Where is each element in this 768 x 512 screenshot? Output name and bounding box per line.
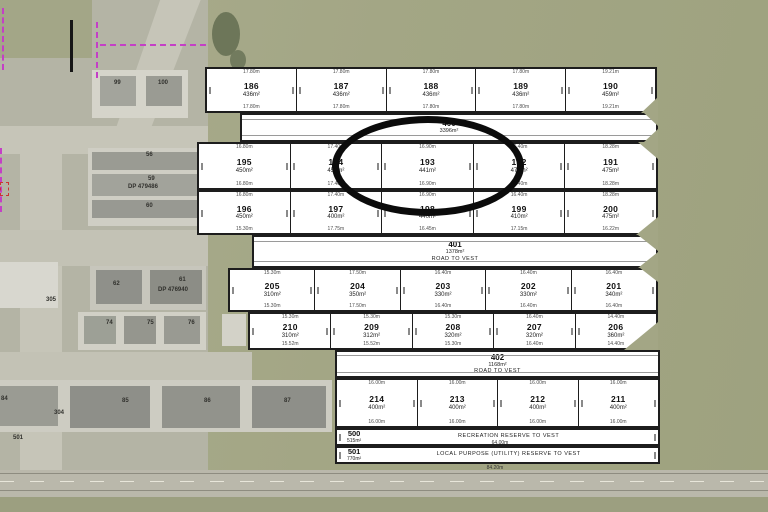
- lot-area: 312m²: [363, 333, 380, 339]
- lot-row-210-206: 15.30m210310m²15.52m15.30m209312m²15.52m…: [248, 312, 658, 350]
- lot-dimension-bottom: 16.00m: [579, 420, 659, 425]
- side-tick: [478, 87, 480, 94]
- lot-number: 191: [603, 158, 618, 167]
- side-tick: [567, 210, 569, 217]
- side-tick: [471, 87, 473, 94]
- lot-dimension-top: 16.80m: [199, 193, 290, 198]
- lot-dimension-bottom: 17.50m: [315, 304, 399, 309]
- lot-cell: 17.80m187436m²17.80m: [296, 69, 386, 111]
- lot-number: 201: [606, 282, 621, 291]
- lot-dimension-bottom: 16.80m: [199, 182, 290, 187]
- lot-dimension-top: 15.30m: [230, 271, 314, 276]
- lot-cell: 16.00m212400m²16.00m: [497, 380, 578, 426]
- side-tick: [652, 210, 654, 217]
- side-tick: [568, 87, 570, 94]
- lot-dimension-bottom: 16.40m: [494, 342, 574, 347]
- side-tick: [560, 163, 562, 170]
- lot-cell: 15.30m209312m²15.52m: [330, 314, 411, 348]
- lot-cell: 16.00m213400m²16.00m: [417, 380, 498, 426]
- side-tick: [317, 287, 319, 294]
- lot-dimension-bottom: 15.52m: [250, 342, 330, 347]
- side-tick: [651, 87, 653, 94]
- lot-area: 459m²: [602, 92, 619, 98]
- side-tick: [489, 328, 491, 335]
- parcel-number: 501: [348, 448, 361, 456]
- lot-dimension-bottom: 17.80m: [476, 105, 565, 110]
- lot-number: 212: [530, 395, 545, 404]
- lot-number: 199: [512, 205, 527, 214]
- side-tick: [396, 287, 398, 294]
- road-parcel-401: 401 1378m² ROAD TO VEST: [252, 235, 658, 268]
- lot-cell: 15.30m205310m²15.30m: [230, 270, 314, 310]
- side-tick: [500, 400, 502, 407]
- lot-number: 200: [603, 205, 618, 214]
- side-tick: [252, 328, 254, 335]
- parcel-note: LOCAL PURPOSE (UTILITY) RESERVE TO VEST: [369, 452, 648, 458]
- lot-number: 190: [603, 82, 618, 91]
- lot-area: 436m²: [512, 92, 529, 98]
- parcel-number: 401: [448, 241, 461, 249]
- parcel-corner-cut: [644, 129, 658, 142]
- lot-number: 209: [364, 323, 379, 332]
- lot-area: 400m²: [610, 405, 627, 411]
- lot-dimension-bottom: 15.30m: [230, 304, 314, 309]
- lot-area: 310m²: [282, 333, 299, 339]
- lot-area: 400m²: [327, 214, 344, 220]
- lot-dimension-bottom: 16.40m: [572, 304, 656, 309]
- side-tick: [488, 287, 490, 294]
- side-tick: [326, 328, 328, 335]
- side-tick: [382, 87, 384, 94]
- lot-dimension-top: 16.80m: [199, 145, 290, 150]
- lot-cell: 16.80m196450m²15.30m: [199, 192, 290, 233]
- lot-area: 436m²: [243, 92, 260, 98]
- road-edge-line: [254, 261, 656, 262]
- lot-cell: 16.00m211400m²16.00m: [578, 380, 659, 426]
- lot-dimension-bottom: 15.30m: [199, 227, 290, 232]
- lot-dimension-top: 17.80m: [387, 70, 476, 75]
- lot-number: 187: [334, 82, 349, 91]
- road-parcel-402: 402 1168m² ROAD TO VEST: [335, 350, 660, 378]
- side-tick: [476, 210, 478, 217]
- parcel-corner-cut: [638, 142, 658, 159]
- side-tick: [560, 210, 562, 217]
- lot-row-205-201: 15.30m205310m²15.30m17.50m204350m²17.50m…: [228, 268, 658, 312]
- lot-dimension-bottom: 16.40m: [401, 304, 485, 309]
- parcel-corner-cut: [638, 235, 658, 251]
- reserve-parcel-501: 501 770m² LOCAL PURPOSE (UTILITY) RESERV…: [335, 446, 660, 464]
- lot-cell: 16.40m202330m²16.40m: [485, 270, 570, 310]
- road-edge-line: [337, 355, 658, 356]
- lot-dimension-top: 16.00m: [418, 381, 498, 386]
- lot-number: 206: [608, 323, 623, 332]
- side-tick: [339, 452, 341, 459]
- lot-cell: 17.80m188436m²17.80m: [386, 69, 476, 111]
- lot-dimension-bottom: 16.40m: [486, 304, 570, 309]
- dimension-label: 84.20m: [455, 466, 535, 471]
- lot-dimension-bottom: 15.30m: [413, 342, 493, 347]
- lot-number: 214: [369, 395, 384, 404]
- side-tick: [496, 328, 498, 335]
- lot-cell: 16.00m214400m²16.00m: [337, 380, 417, 426]
- lot-dimension-bottom: 16.00m: [418, 420, 498, 425]
- lot-dimension-bottom: 17.80m: [297, 105, 386, 110]
- lot-cell: 16.40m207320m²16.40m: [493, 314, 574, 348]
- side-tick: [578, 328, 580, 335]
- lot-cell: 15.30m210310m²15.52m: [250, 314, 330, 348]
- side-tick: [286, 163, 288, 170]
- lot-row-214-211: 16.00m214400m²16.00m16.00m213400m²16.00m…: [335, 378, 660, 428]
- side-tick: [377, 210, 379, 217]
- lot-dimension-top: 15.30m: [331, 315, 411, 320]
- lot-row-186-190: 17.80m186436m²17.80m17.80m187436m²17.80m…: [205, 67, 657, 113]
- lot-number: 210: [283, 323, 298, 332]
- lot-dimension-bottom: 17.15m: [474, 227, 565, 232]
- lot-number: 202: [521, 282, 536, 291]
- lot-area: 450m²: [236, 168, 253, 174]
- lot-area: 360m²: [607, 333, 624, 339]
- side-tick: [339, 400, 341, 407]
- parcel-number: 500: [348, 430, 361, 438]
- side-tick: [481, 287, 483, 294]
- side-tick: [389, 87, 391, 94]
- lot-area: 400m²: [449, 405, 466, 411]
- lot-dimension-top: 16.00m: [337, 381, 417, 386]
- lot-cell: 16.80m195450m²16.80m: [199, 144, 290, 188]
- lot-dimension-top: 17.80m: [476, 70, 565, 75]
- side-tick: [493, 400, 495, 407]
- lot-cell: 15.30m208320m²15.30m: [412, 314, 493, 348]
- side-tick: [310, 287, 312, 294]
- lot-dimension-top: 16.40m: [401, 271, 485, 276]
- side-tick: [403, 287, 405, 294]
- lot-dimension-bottom: 17.80m: [387, 105, 476, 110]
- lot-cell: 17.50m204350m²17.50m: [314, 270, 399, 310]
- side-tick: [652, 287, 654, 294]
- side-tick: [292, 87, 294, 94]
- side-tick: [339, 434, 341, 441]
- dimension-label: 64.00m: [470, 441, 530, 446]
- lot-number: 197: [328, 205, 343, 214]
- lot-number: 204: [350, 282, 365, 291]
- highlight-ellipse-lot-193: [332, 116, 524, 216]
- side-tick: [561, 87, 563, 94]
- lot-dimension-bottom: 17.75m: [291, 227, 382, 232]
- lot-area: 436m²: [333, 92, 350, 98]
- lot-cell: 17.80m186436m²17.80m: [207, 69, 296, 111]
- lot-number: 189: [513, 82, 528, 91]
- lot-dimension-bottom: 16.00m: [337, 420, 417, 425]
- lot-number: 207: [527, 323, 542, 332]
- side-tick: [574, 400, 576, 407]
- lot-dimension-top: 16.40m: [494, 315, 574, 320]
- lot-dimension-top: 15.30m: [413, 315, 493, 320]
- lot-area: 410m²: [511, 214, 528, 220]
- side-tick: [333, 328, 335, 335]
- lot-number: 211: [611, 395, 626, 404]
- parcel-corner-cut: [638, 252, 658, 268]
- side-tick: [408, 328, 410, 335]
- lot-area: 320m²: [445, 333, 462, 339]
- parcel-area: 770m²: [347, 457, 361, 462]
- side-tick: [201, 210, 203, 217]
- lot-number: 205: [265, 282, 280, 291]
- lot-dimension-top: 19.21m: [566, 70, 655, 75]
- side-tick: [413, 400, 415, 407]
- lot-dimension-top: 16.00m: [579, 381, 659, 386]
- lot-number: 213: [450, 395, 465, 404]
- parcel-corner-cut: [636, 217, 658, 235]
- plan-overlay: 17.80m186436m²17.80m17.80m187436m²17.80m…: [0, 0, 768, 512]
- road-edge-line: [254, 241, 656, 242]
- side-tick: [299, 87, 301, 94]
- side-tick: [654, 452, 656, 459]
- parcel-area: 1378m²: [446, 250, 465, 256]
- lot-number: 208: [445, 323, 460, 332]
- lot-dimension-bottom: 16.45m: [382, 227, 473, 232]
- lot-dimension-bottom: 15.52m: [331, 342, 411, 347]
- lot-area: 400m²: [368, 405, 385, 411]
- lot-dimension-top: 16.00m: [498, 381, 578, 386]
- side-tick: [286, 210, 288, 217]
- lot-dimension-bottom: 16.00m: [498, 420, 578, 425]
- side-tick: [652, 163, 654, 170]
- lot-number: 203: [435, 282, 450, 291]
- lot-area: 436m²: [422, 92, 439, 98]
- parcel-area: 515m²: [347, 439, 361, 444]
- lot-area: 330m²: [435, 292, 452, 298]
- parcel-corner-cut: [624, 322, 658, 350]
- lot-area: 400m²: [529, 405, 546, 411]
- lot-area: 450m²: [236, 214, 253, 220]
- side-tick: [567, 287, 569, 294]
- side-tick: [574, 287, 576, 294]
- parcel-corner-cut: [644, 113, 658, 126]
- side-tick: [209, 87, 211, 94]
- lot-number: 195: [237, 158, 252, 167]
- side-tick: [415, 328, 417, 335]
- lot-area: 475m²: [602, 214, 619, 220]
- lot-dimension-top: 17.80m: [297, 70, 386, 75]
- lot-area: 340m²: [605, 292, 622, 298]
- road-edge-line: [337, 372, 658, 373]
- side-tick: [293, 163, 295, 170]
- parcel-note: RECREATION RESERVE TO VEST: [369, 434, 648, 440]
- side-tick: [581, 400, 583, 407]
- lot-number: 188: [423, 82, 438, 91]
- lot-dimension-top: 14.40m: [576, 315, 656, 320]
- side-tick: [654, 400, 656, 407]
- side-tick: [571, 328, 573, 335]
- lot-dimension-top: 16.40m: [486, 271, 570, 276]
- lot-number: 186: [244, 82, 259, 91]
- lot-area: 330m²: [520, 292, 537, 298]
- lot-dimension-top: 18.28m: [565, 193, 656, 198]
- lot-area: 350m²: [349, 292, 366, 298]
- side-tick: [293, 210, 295, 217]
- lot-dimension-bottom: 18.28m: [565, 182, 656, 187]
- lot-dimension-bottom: 17.80m: [207, 105, 296, 110]
- lot-cell: 17.80m189436m²17.80m: [475, 69, 565, 111]
- parcel-corner-cut: [641, 97, 658, 113]
- side-tick: [201, 163, 203, 170]
- subdivision-plan-map: 17.80m186436m²17.80m17.80m187436m²17.80m…: [0, 0, 768, 512]
- lot-dimension-top: 15.30m: [250, 315, 330, 320]
- side-tick: [567, 163, 569, 170]
- lot-number: 196: [237, 205, 252, 214]
- side-tick: [232, 287, 234, 294]
- side-tick: [420, 400, 422, 407]
- lot-dimension-top: 17.50m: [315, 271, 399, 276]
- lot-dimension-top: 17.80m: [207, 70, 296, 75]
- lot-area: 475m²: [602, 168, 619, 174]
- lot-cell: 16.40m203330m²16.40m: [400, 270, 485, 310]
- lot-area: 320m²: [526, 333, 543, 339]
- side-tick: [654, 434, 656, 441]
- lot-area: 310m²: [264, 292, 281, 298]
- parcel-corner-cut: [640, 268, 658, 282]
